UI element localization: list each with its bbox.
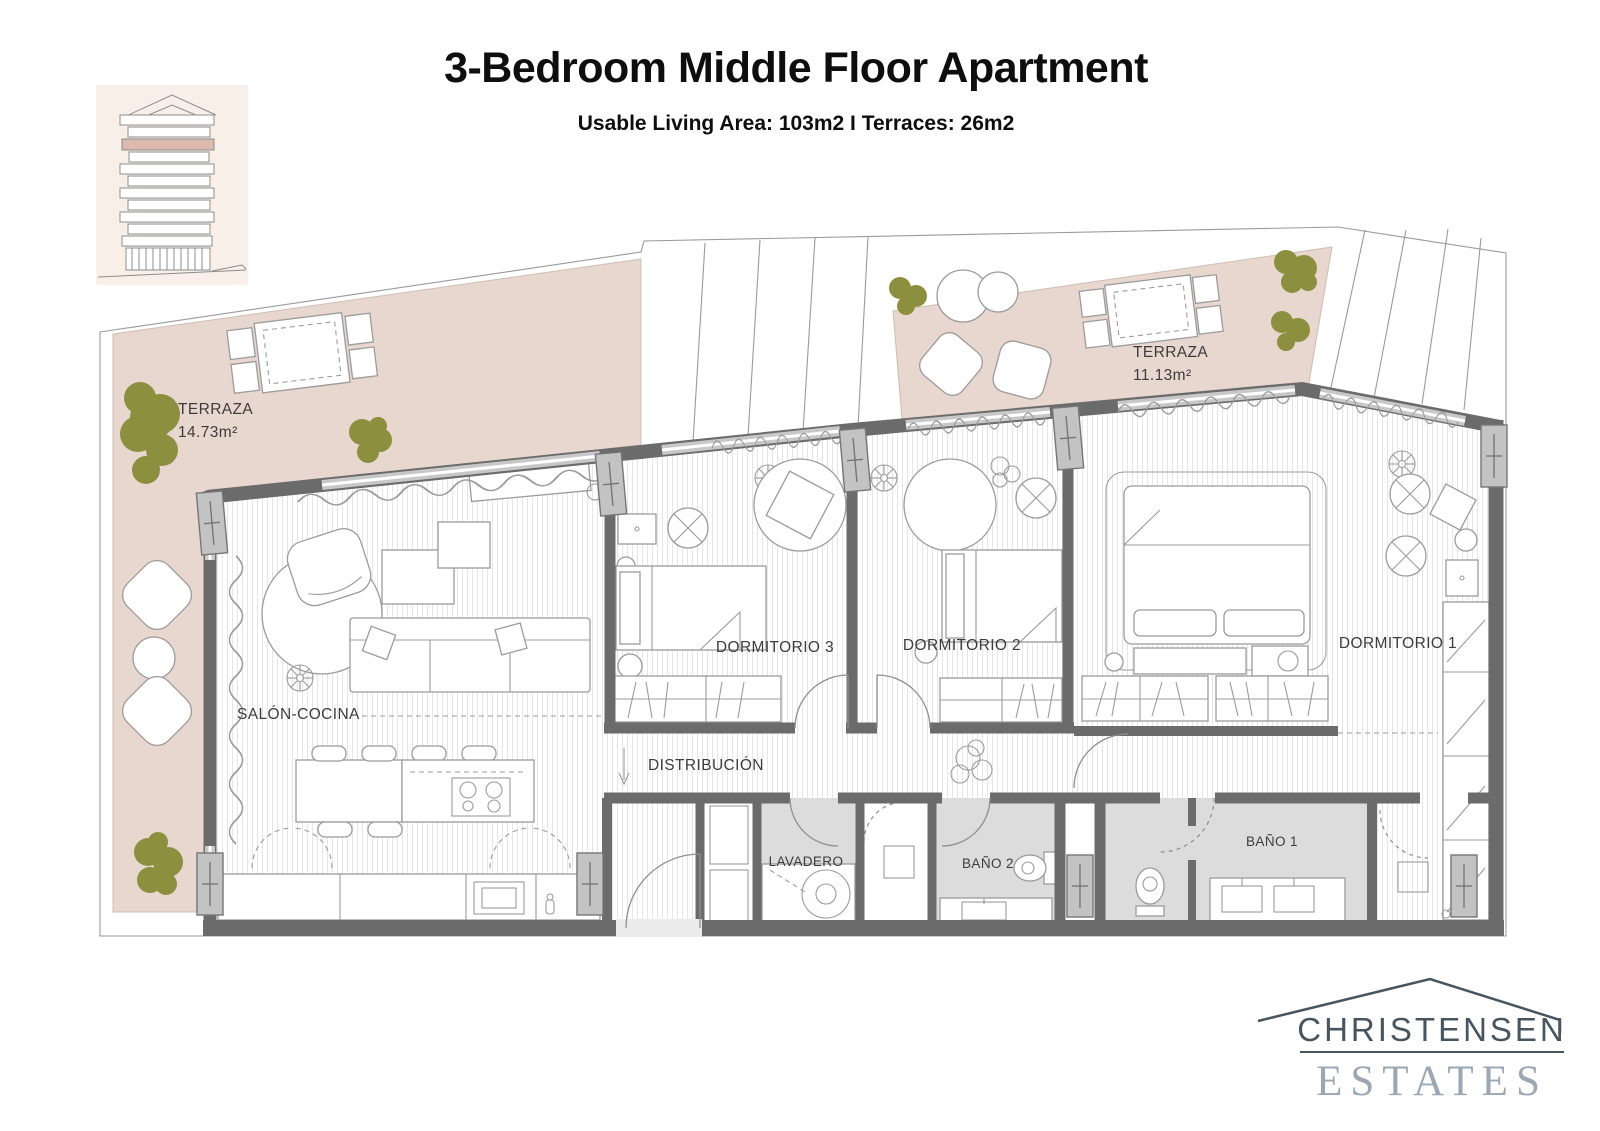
chair [1390, 474, 1430, 514]
sofa [350, 618, 590, 692]
washer [762, 864, 855, 924]
floor-plan-page: 3-Bedroom Middle Floor Apartment Usable … [0, 0, 1600, 1131]
label-terraza-right-area: 11.13m² [1133, 367, 1192, 384]
wardrobe [1082, 676, 1208, 721]
label-salon-cocina: SALÓN-COCINA [237, 706, 360, 723]
floor-plan-svg: TERRAZA 14.73m² TERRAZA 11.13m² SALÓN-CO… [0, 0, 1600, 1131]
toilet-bano1 [1136, 868, 1164, 916]
bed-single [616, 566, 766, 650]
label-bano-1: BAÑO 1 [1246, 834, 1298, 849]
label-terraza-left-area: 14.73m² [178, 424, 238, 441]
wardrobe [1216, 676, 1328, 721]
logo-name: CHRISTENSEN [1297, 1011, 1567, 1048]
chair [1386, 536, 1426, 576]
label-lavadero: LAVADERO [769, 854, 844, 869]
bench [1134, 648, 1246, 674]
label-bano-2: BAÑO 2 [962, 856, 1014, 871]
label-dormitorio-1: DORMITORIO 1 [1339, 635, 1457, 652]
wardrobe [613, 676, 781, 722]
label-terraza-left: TERRAZA [178, 401, 253, 418]
chair [668, 508, 708, 548]
entrance-threshold [616, 919, 702, 937]
bed-double [1124, 486, 1310, 644]
double-sink-bano1 [1210, 878, 1345, 924]
chair [1016, 478, 1056, 518]
bed-single [942, 550, 1062, 642]
label-terraza-right: TERRAZA [1133, 344, 1208, 361]
label-dormitorio-3: DORMITORIO 3 [716, 639, 834, 656]
desk [618, 514, 656, 544]
closet-hall [862, 800, 930, 928]
logo-type: ESTATES [1316, 1058, 1548, 1105]
label-distribucion: DISTRIBUCIÓN [648, 757, 764, 774]
kitchen-counter [218, 874, 600, 920]
wardrobe [940, 678, 1062, 722]
building-illustration [96, 85, 248, 285]
kitchen-island [402, 760, 534, 822]
side-table [438, 522, 490, 568]
label-dormitorio-2: DORMITORIO 2 [903, 637, 1021, 654]
rug [904, 459, 996, 551]
brand-logo: CHRISTENSEN ESTATES [1258, 979, 1567, 1105]
